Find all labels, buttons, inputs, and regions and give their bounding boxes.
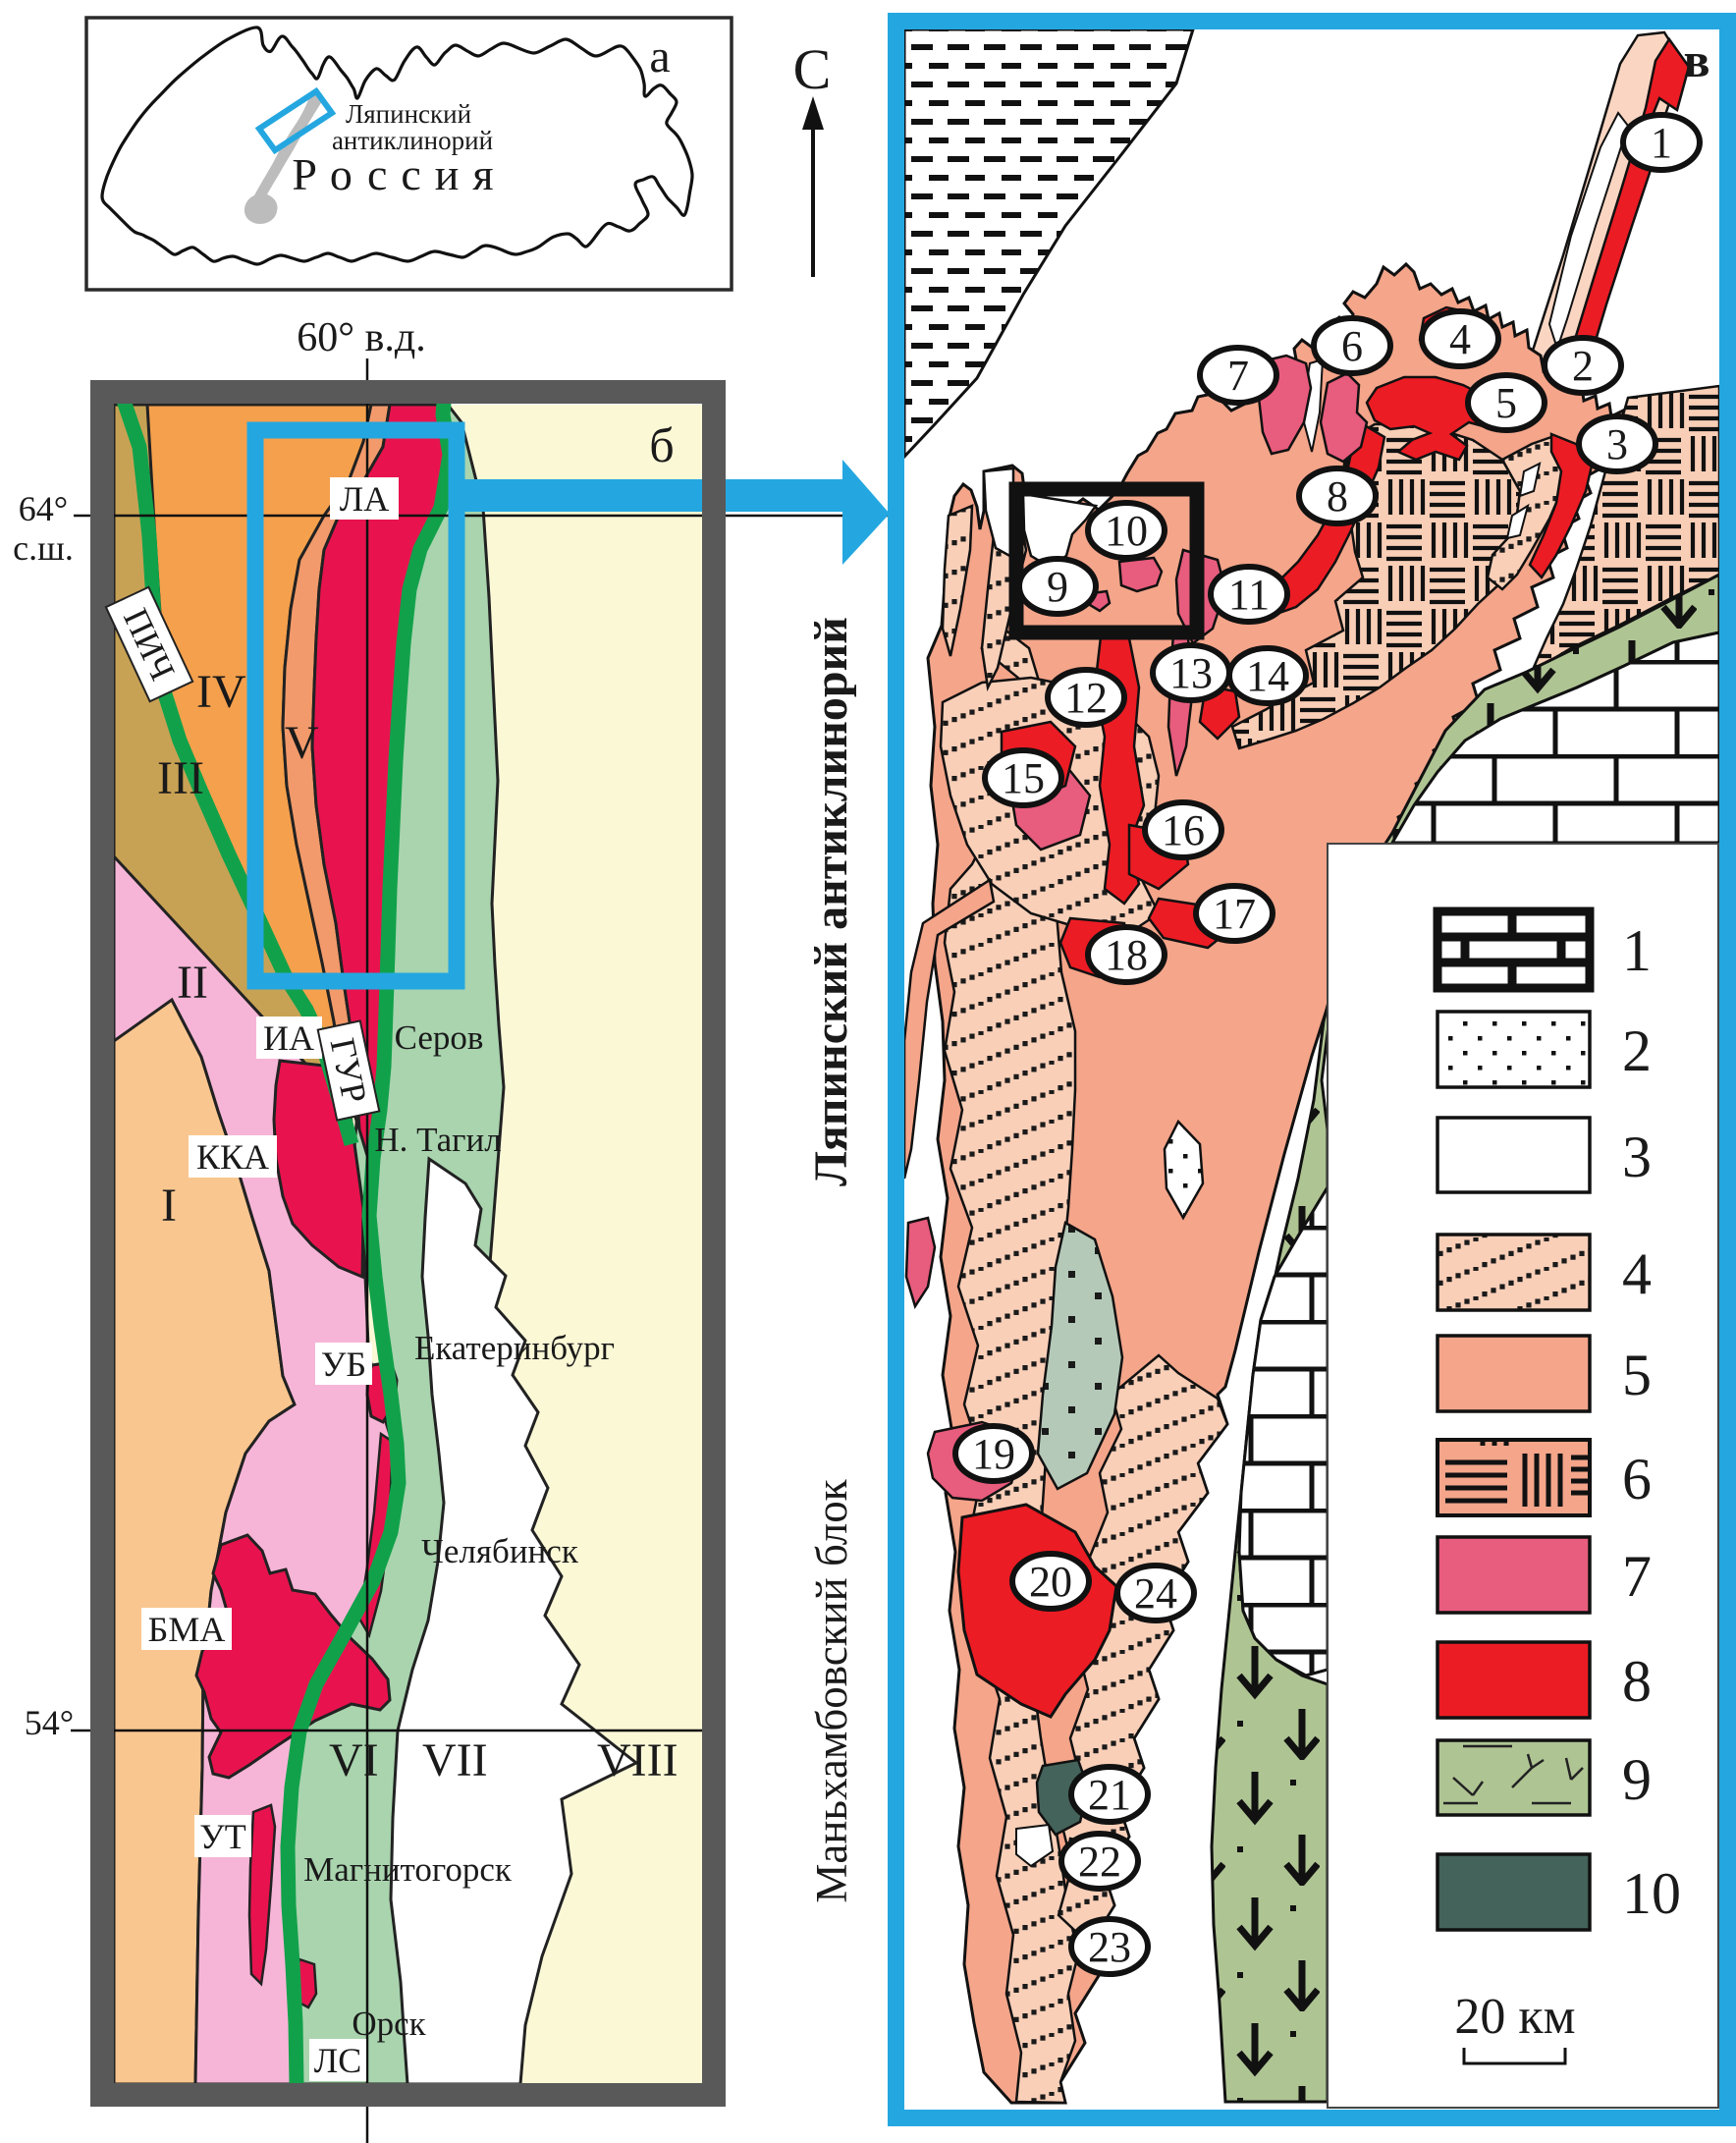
svg-text:С: С: [793, 37, 832, 101]
svg-text:Магнитогорск: Магнитогорск: [303, 1850, 513, 1889]
svg-text:19: 19: [972, 1430, 1015, 1478]
svg-text:4: 4: [1449, 315, 1471, 363]
svg-text:I: I: [161, 1180, 177, 1232]
svg-text:17: 17: [1213, 890, 1256, 938]
svg-text:10: 10: [1105, 507, 1148, 555]
svg-text:24: 24: [1134, 1569, 1177, 1618]
svg-text:1: 1: [1651, 119, 1672, 167]
svg-text:14: 14: [1246, 652, 1289, 700]
svg-text:23: 23: [1088, 1923, 1131, 1971]
svg-text:VI: VI: [329, 1734, 379, 1786]
svg-text:1: 1: [1622, 918, 1652, 983]
svg-text:Ляпинский антиклинорий: Ляпинский антиклинорий: [805, 617, 857, 1186]
svg-text:4: 4: [1622, 1241, 1652, 1306]
svg-text:18: 18: [1105, 931, 1148, 979]
svg-text:3: 3: [1606, 420, 1628, 468]
svg-text:БМА: БМА: [148, 1610, 226, 1649]
svg-text:УБ: УБ: [321, 1345, 366, 1384]
svg-text:2: 2: [1572, 342, 1594, 390]
svg-text:54°: 54°: [25, 1703, 74, 1742]
svg-text:Н. Тагил: Н. Тагил: [374, 1121, 501, 1159]
svg-text:ЛС: ЛС: [314, 2041, 361, 2080]
svg-text:8: 8: [1327, 472, 1348, 521]
svg-text:с.ш.: с.ш.: [13, 528, 74, 568]
svg-text:20 км: 20 км: [1454, 1989, 1575, 2045]
svg-text:9: 9: [1047, 563, 1068, 611]
svg-text:Челябинск: Челябинск: [421, 1532, 579, 1570]
svg-text:11: 11: [1228, 571, 1270, 619]
svg-text:II: II: [177, 957, 208, 1009]
svg-text:15: 15: [1002, 754, 1045, 802]
svg-text:ЛА: ЛА: [340, 479, 389, 519]
svg-text:7: 7: [1227, 352, 1249, 400]
svg-text:2: 2: [1622, 1018, 1652, 1083]
svg-text:5: 5: [1495, 379, 1517, 427]
svg-text:13: 13: [1169, 649, 1213, 697]
svg-text:9: 9: [1622, 1747, 1652, 1812]
svg-text:Екатеринбург: Екатеринбург: [414, 1329, 615, 1367]
svg-text:20: 20: [1029, 1558, 1072, 1606]
svg-text:Орск: Орск: [352, 2005, 426, 2043]
svg-text:VIII: VIII: [597, 1734, 678, 1786]
svg-text:VII: VII: [422, 1734, 488, 1786]
svg-text:ИА: ИА: [263, 1018, 314, 1058]
svg-text:6: 6: [1341, 322, 1363, 370]
svg-text:10: 10: [1622, 1861, 1681, 1926]
svg-text:Серов: Серов: [395, 1018, 484, 1057]
svg-text:16: 16: [1162, 806, 1205, 854]
svg-text:IV: IV: [196, 666, 246, 718]
svg-text:УТ: УТ: [199, 1817, 245, 1856]
svg-text:в: в: [1683, 32, 1709, 87]
svg-text:3: 3: [1622, 1125, 1652, 1189]
svg-text:22: 22: [1078, 1838, 1121, 1886]
svg-text:III: III: [157, 752, 204, 804]
svg-text:б: б: [649, 417, 674, 472]
svg-text:5: 5: [1622, 1343, 1652, 1407]
svg-text:60° в.д.: 60° в.д.: [297, 315, 426, 360]
svg-text:21: 21: [1088, 1771, 1131, 1819]
svg-text:6: 6: [1622, 1447, 1652, 1511]
svg-text:ККА: ККА: [196, 1137, 269, 1177]
svg-text:а: а: [649, 30, 670, 82]
svg-text:12: 12: [1064, 674, 1108, 722]
svg-text:7: 7: [1622, 1544, 1652, 1609]
svg-text:Ляпинский: Ляпинский: [346, 99, 471, 129]
svg-text:64°: 64°: [19, 489, 68, 528]
svg-text:Маньхамбовский блок: Маньхамбовский блок: [807, 1479, 856, 1902]
svg-text:Россия: Россия: [292, 149, 507, 199]
svg-text:V: V: [285, 717, 319, 769]
svg-text:8: 8: [1622, 1649, 1652, 1714]
